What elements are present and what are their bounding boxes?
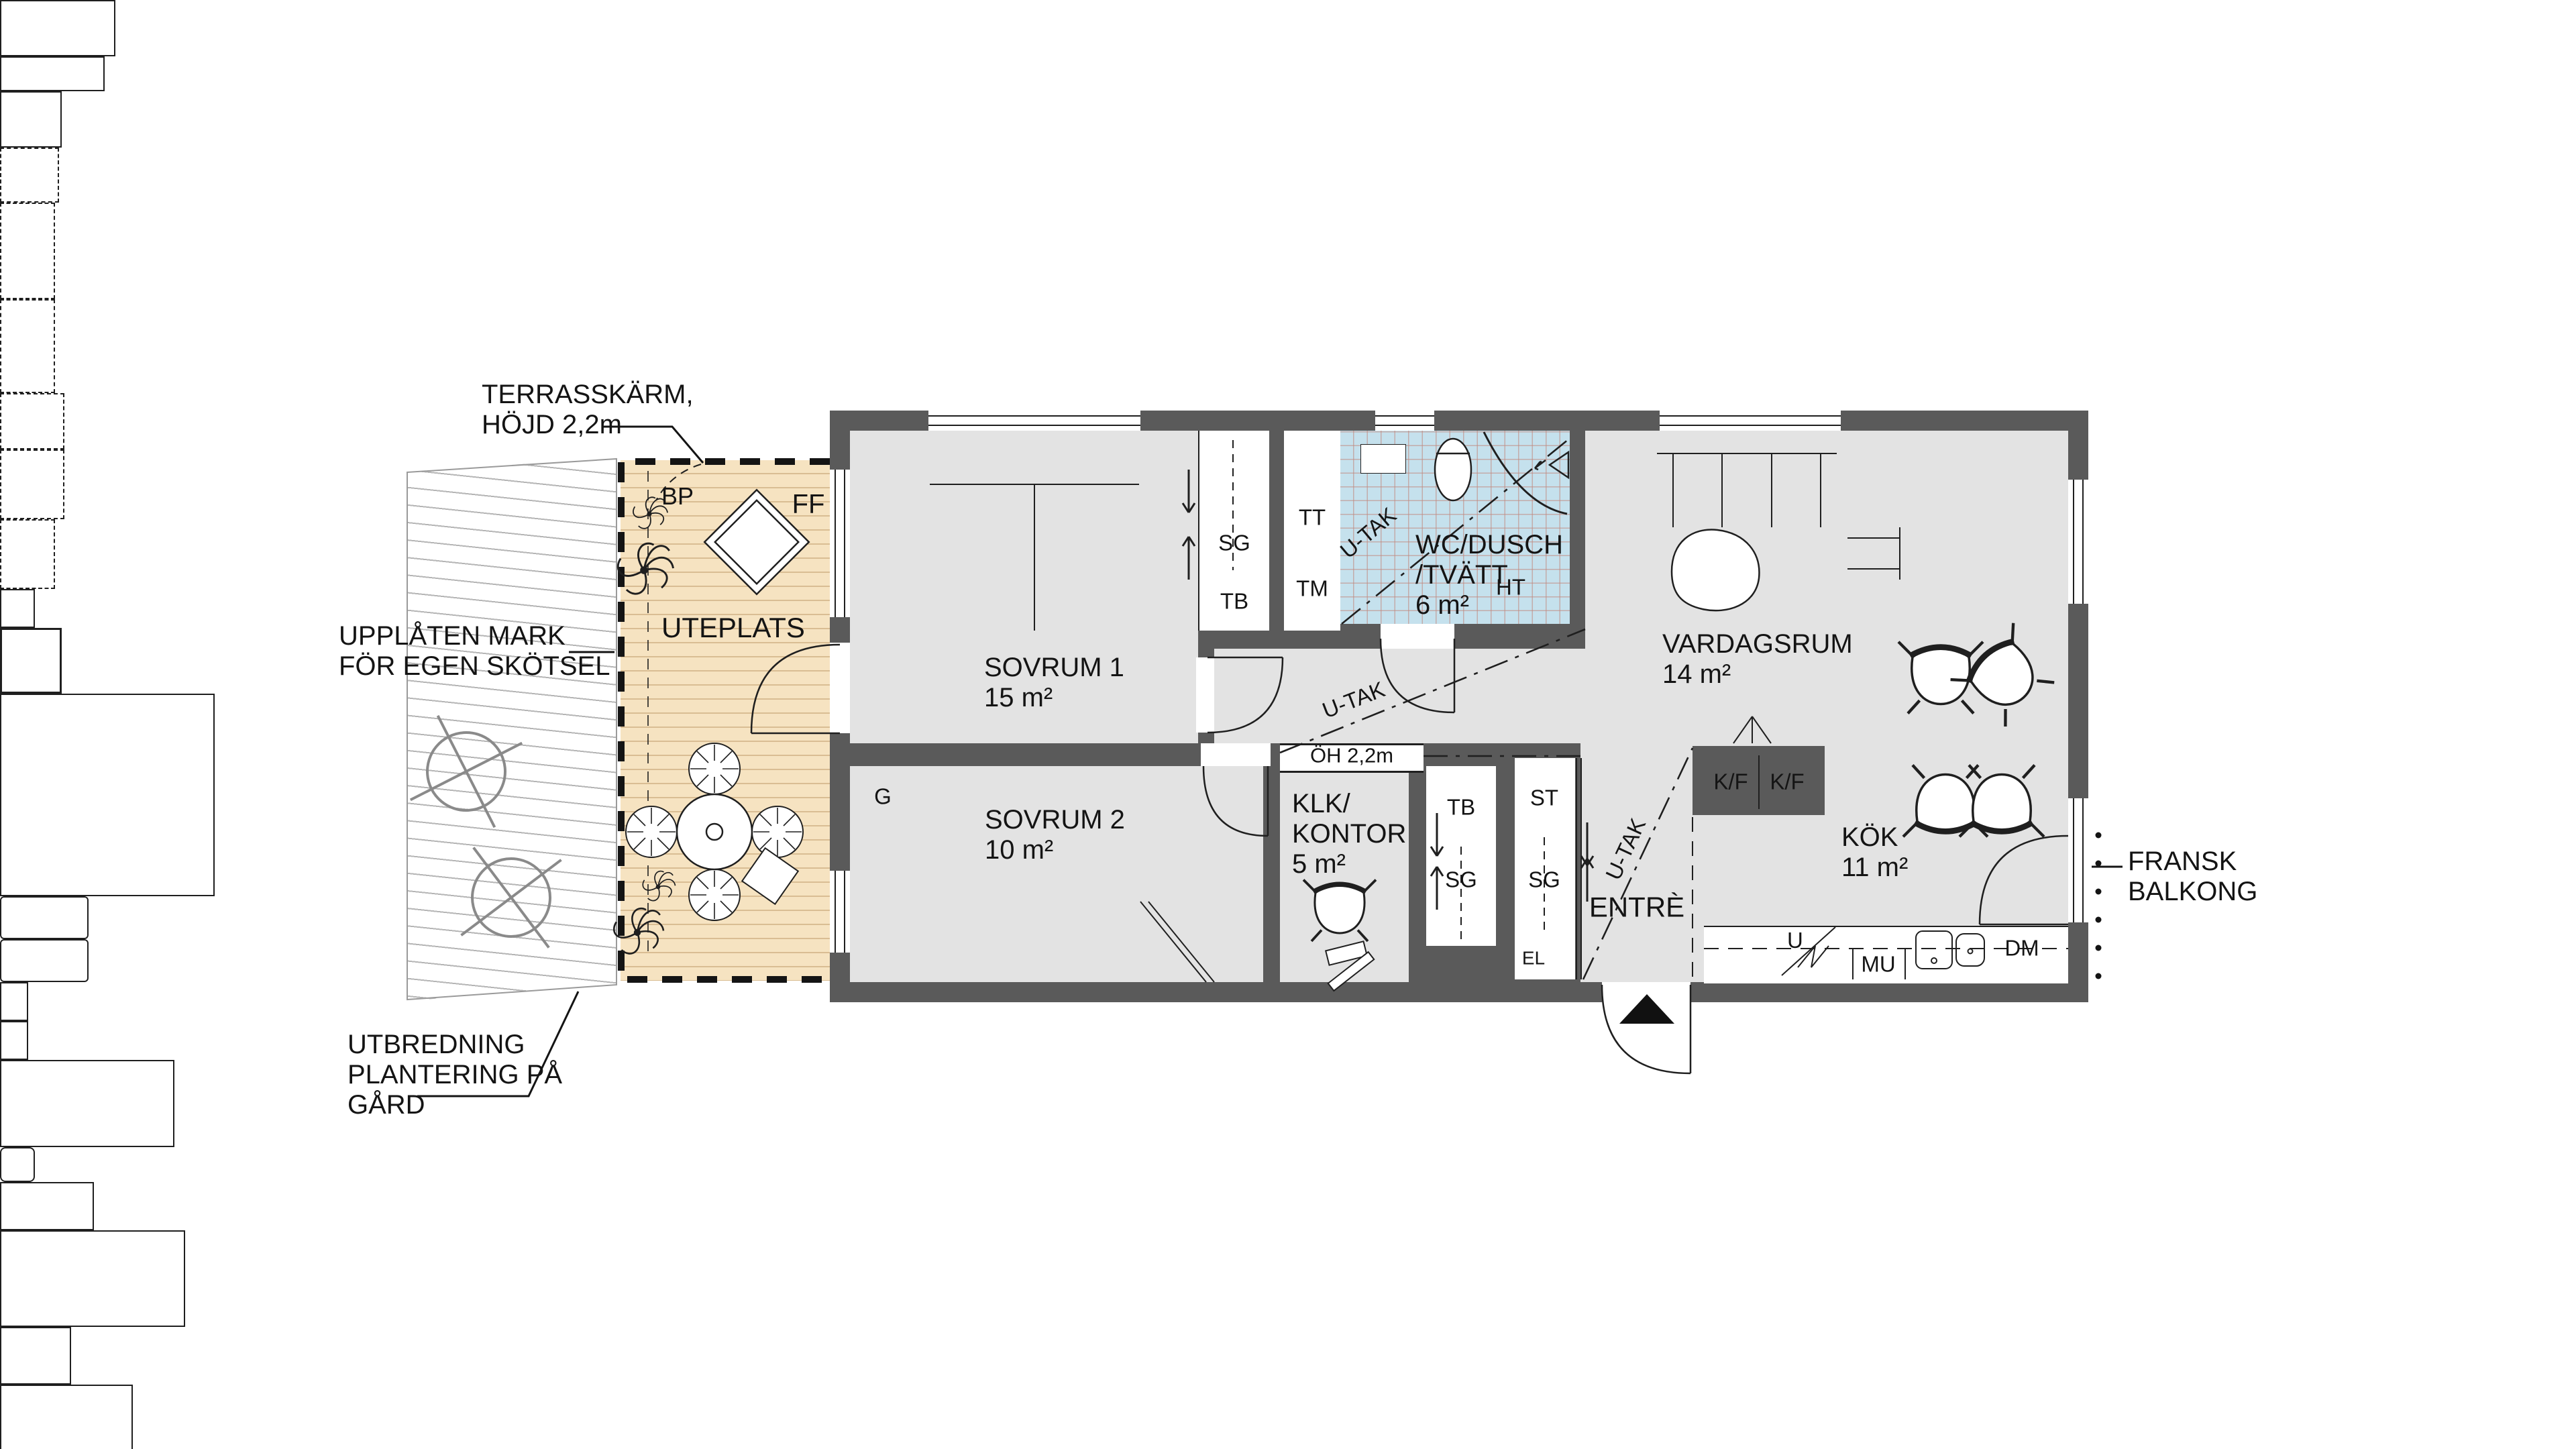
label-tm: TM: [1296, 577, 1328, 602]
label-dm: DM: [2004, 936, 2039, 961]
annotation-granted-land: UPPLÅTEN MARK FÖR EGEN SKÖTSEL: [339, 621, 610, 682]
hall-floor: [1214, 649, 1585, 743]
label-tt: TT: [1299, 506, 1326, 531]
st-box-entre: [0, 519, 55, 589]
annotation-planting: UTBREDNING PLANTERING PÅ GÅRD: [347, 1030, 562, 1120]
oven-unit: [0, 91, 62, 148]
single-bed: [0, 1060, 174, 1147]
nightstand-right: [0, 1021, 28, 1060]
label-sg: SG: [1218, 531, 1250, 556]
door-gap-entry: [1602, 982, 1690, 1002]
window-vardagsrum-right: [2068, 480, 2088, 604]
door-gap-sovrum1: [1196, 657, 1214, 733]
dryer-box: [0, 203, 55, 299]
yard-planting-hatch: [407, 458, 616, 1001]
sofa: [0, 1230, 185, 1327]
annotation-terrace-screen: TERRASSKÄRM, HÖJD 2,2m: [482, 380, 694, 440]
room-label-klk: KLK/ KONTOR 5 m²: [1292, 789, 1406, 879]
room-entre-floor: [1580, 743, 1693, 982]
single-bed-pillow: [0, 1147, 35, 1182]
floor-plan-canvas: TERRASSKÄRM, HÖJD 2,2m UPPLÅTEN MARK FÖR…: [0, 0, 2576, 1449]
tb-box-klk: [0, 449, 64, 519]
dining-table: [0, 1385, 133, 1449]
room-vardagsrum-floor: [1585, 431, 2068, 746]
window-fransk-balkong: [2068, 798, 2088, 922]
armchair: [0, 1327, 71, 1385]
label-kf-1: K/F: [1713, 770, 1748, 795]
label-sg-2: SG: [1445, 868, 1477, 893]
label-sg-3: SG: [1528, 868, 1560, 893]
door-gap-sovrum2: [1201, 743, 1271, 766]
room-label-sovrum1: SOVRUM 1 15 m²: [984, 653, 1124, 713]
label-kf-2: K/F: [1770, 770, 1804, 795]
room-label-vardagsrum: VARDAGSRUM 14 m²: [1662, 629, 1853, 690]
pillow-left: [0, 896, 89, 939]
label-el: EL: [1522, 947, 1545, 968]
sideboard: [0, 56, 105, 91]
balcony-railing-dots: [2096, 833, 2102, 979]
fridge-freezer-cabinet: [0, 0, 115, 56]
door-gap-wc: [1381, 624, 1454, 649]
double-bed: [0, 694, 215, 896]
terrace-ff-label: FF: [792, 490, 825, 520]
annotation-french-balcony: FRANSK BALKONG: [2128, 847, 2257, 907]
label-st: ST: [1530, 786, 1558, 811]
terrace-bp-label: BP: [661, 483, 694, 510]
pillow-right: [0, 939, 89, 982]
room-label-sovrum2: SOVRUM 2 10 m²: [985, 805, 1125, 865]
label-mu: MU: [1861, 953, 1895, 977]
label-tb: TB: [1220, 590, 1248, 614]
washer-box: [0, 299, 55, 393]
label-tb-2: TB: [1447, 796, 1475, 820]
kf-block-walls: [1693, 746, 1825, 815]
window-vardagsrum-top: [1660, 411, 1841, 431]
g-closet: [0, 628, 62, 694]
window-sovrum1-top: [928, 411, 1140, 431]
label-u: U: [1787, 928, 1803, 953]
room-label-entre: ENTRÈ: [1589, 891, 1684, 922]
window-wc-top: [1375, 411, 1434, 431]
label-oh: ÖH 2,2m: [1310, 745, 1393, 768]
door-gap-terrace: [830, 643, 850, 733]
closet-tb-sg-klk: [1426, 766, 1496, 946]
dishwasher: [0, 148, 59, 203]
room-sovrum2-floor: [850, 766, 1263, 982]
tb-box-sovrum1: [0, 393, 64, 449]
terrace-label: UTEPLATS: [661, 612, 805, 643]
terrace-deck: [621, 460, 830, 981]
desk: [0, 1182, 94, 1230]
bathroom-sink-bowl: [1360, 444, 1406, 474]
window-sovrum2-left: [830, 871, 850, 953]
room-label-kok: KÖK 11 m²: [1841, 822, 1908, 883]
label-g: G: [874, 785, 892, 810]
window-sovrum1-left: [830, 470, 850, 617]
el-cabinet: [0, 589, 35, 628]
label-ht: HT: [1496, 576, 1525, 600]
room-label-wc: WC/DUSCH /TVÄTT 6 m²: [1415, 530, 1563, 620]
nightstand-left: [0, 982, 28, 1021]
